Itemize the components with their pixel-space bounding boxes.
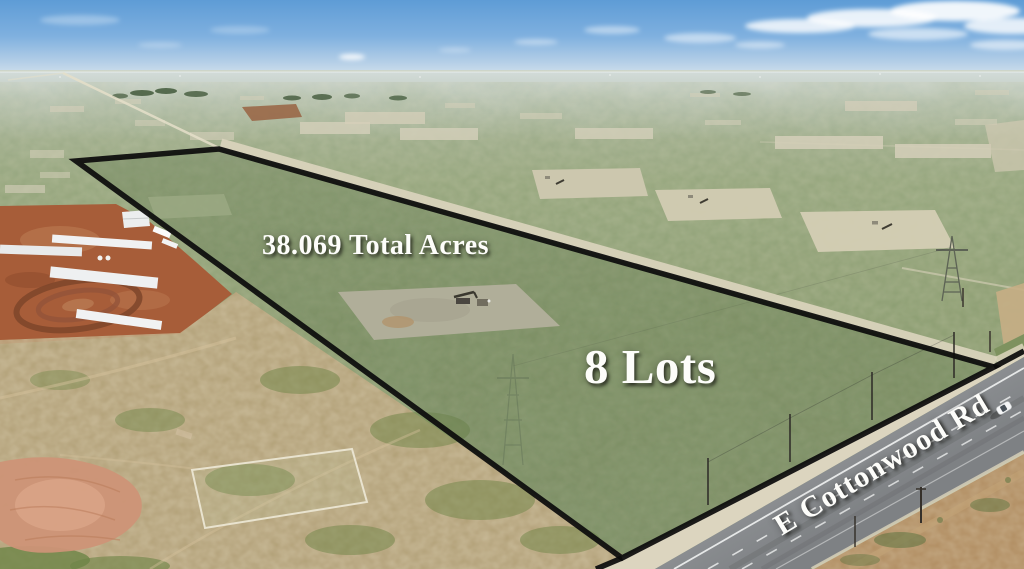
aerial-listing-photo: 38.069 Total Acres 8 Lots E Cottonwood R…	[0, 0, 1024, 569]
oil-pad	[655, 188, 782, 221]
landscape-scene	[0, 0, 1024, 569]
oil-pad	[532, 168, 648, 199]
oil-pad	[800, 210, 955, 252]
pink-dirt-highlight	[15, 479, 105, 531]
cleared-patch	[148, 194, 232, 219]
dirt-mound	[382, 316, 414, 328]
